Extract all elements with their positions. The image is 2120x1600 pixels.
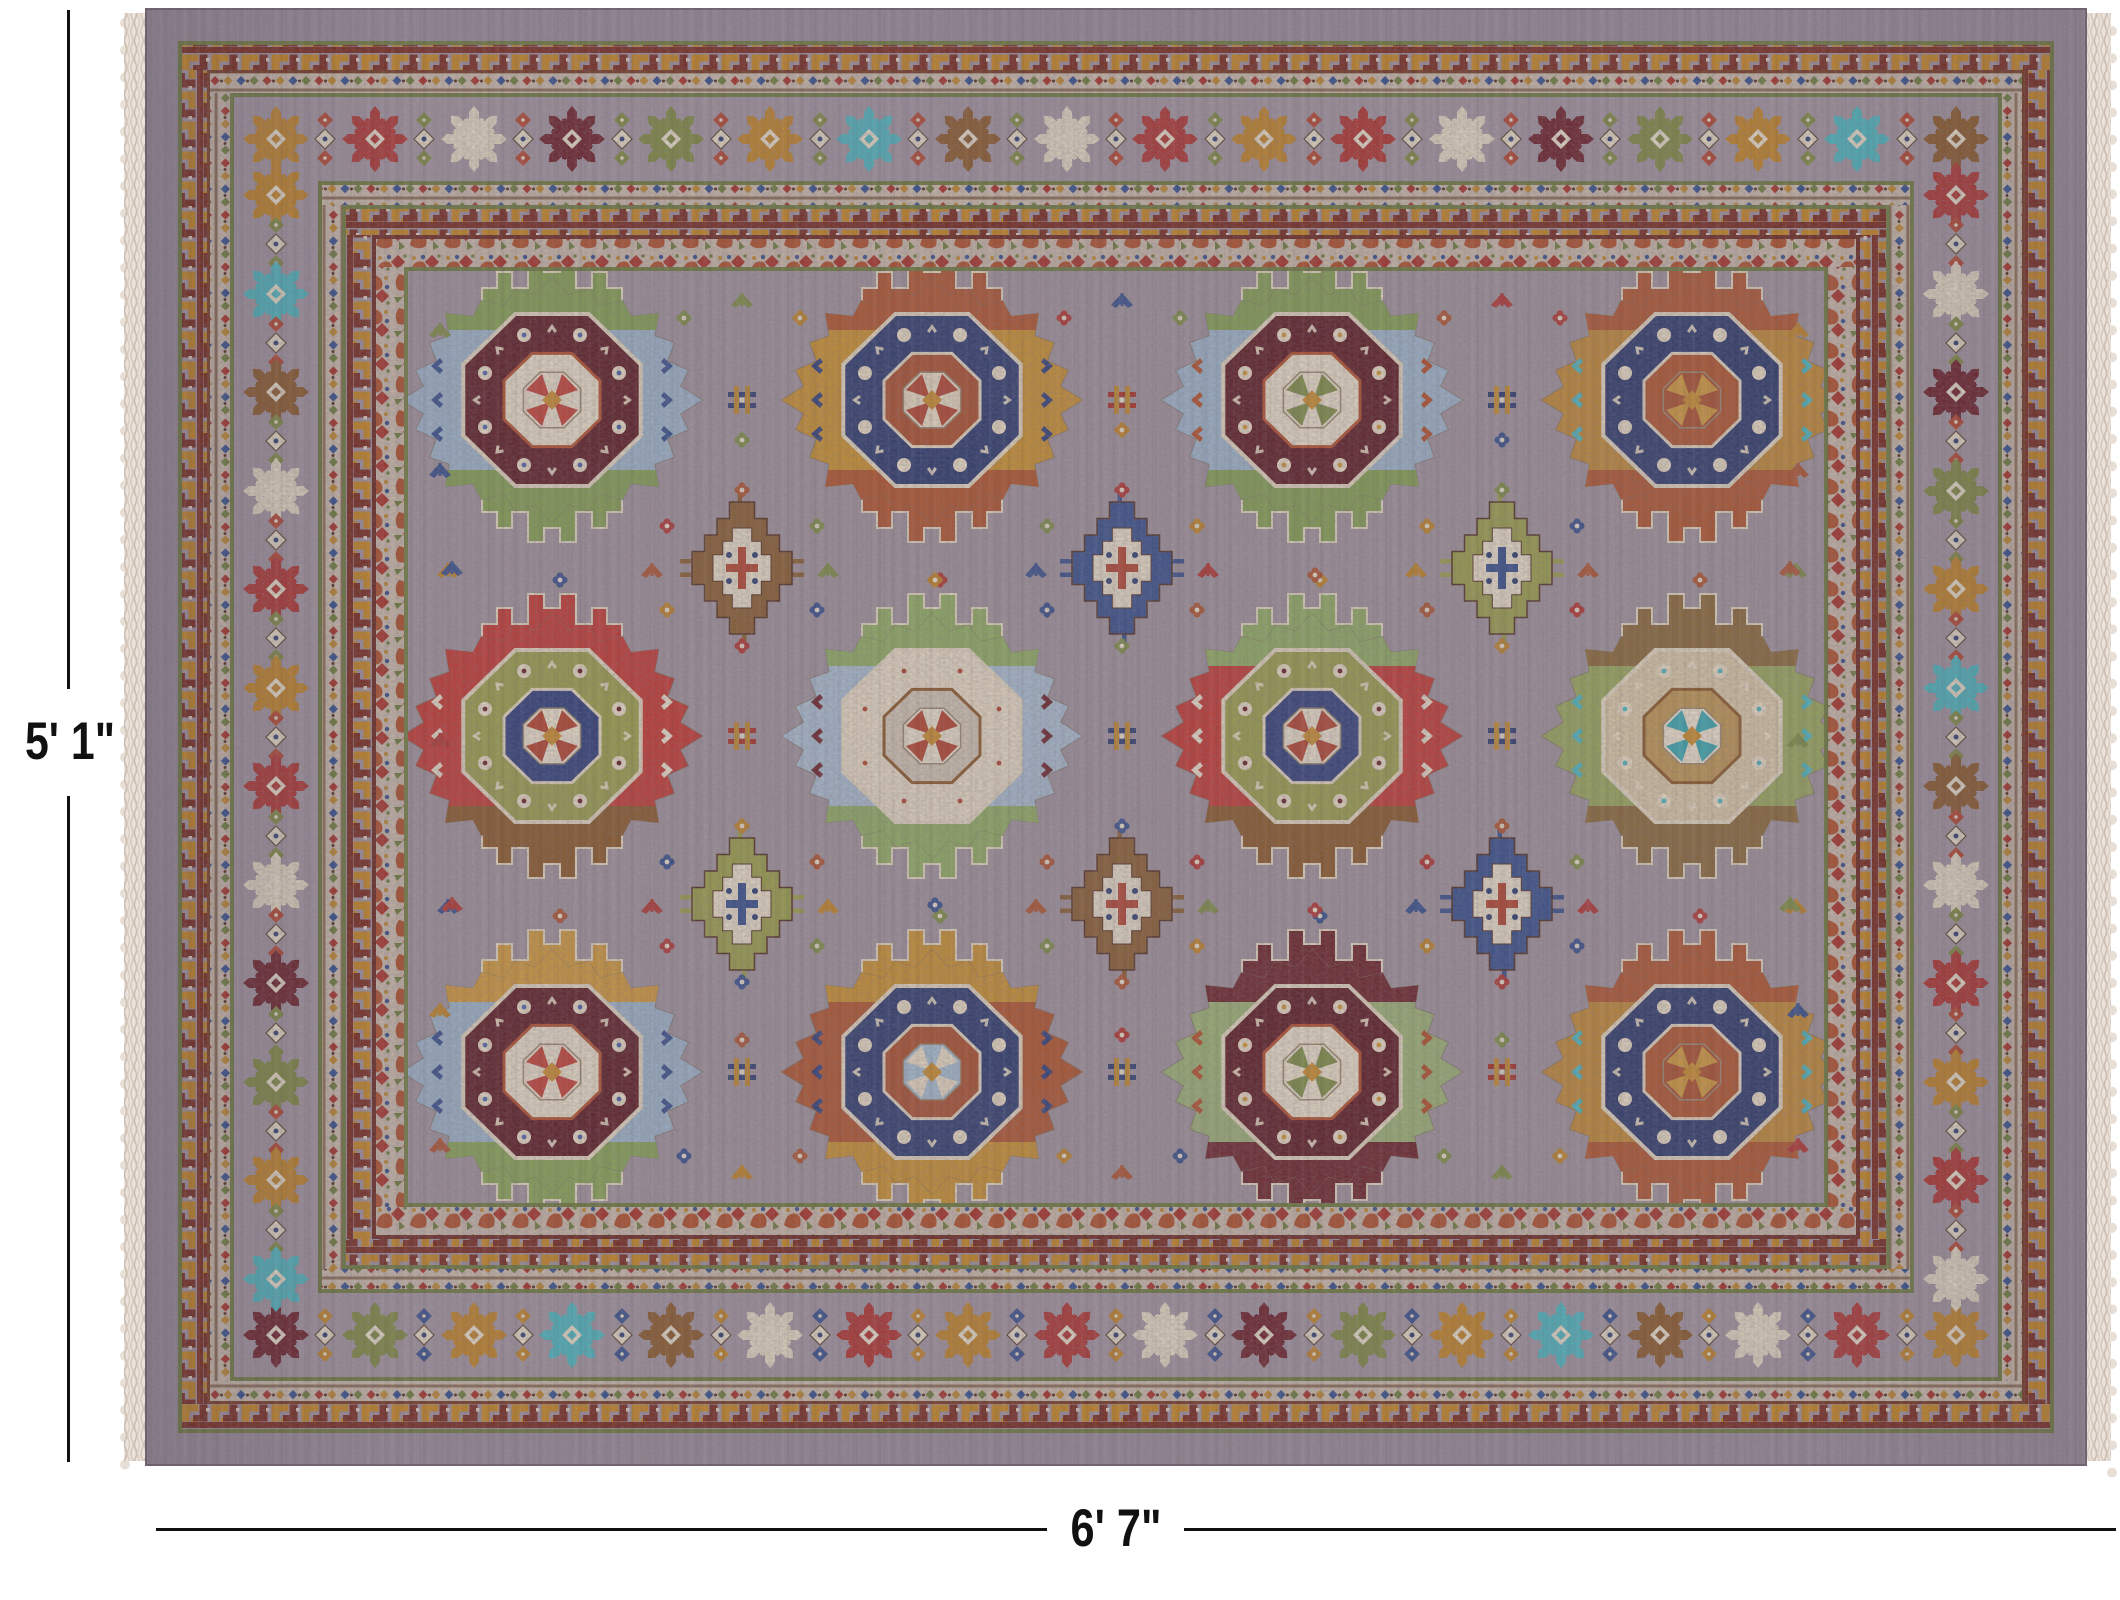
svg-text:5' 1": 5' 1" <box>25 712 115 771</box>
svg-text:6' 7": 6' 7" <box>1071 1499 1162 1558</box>
